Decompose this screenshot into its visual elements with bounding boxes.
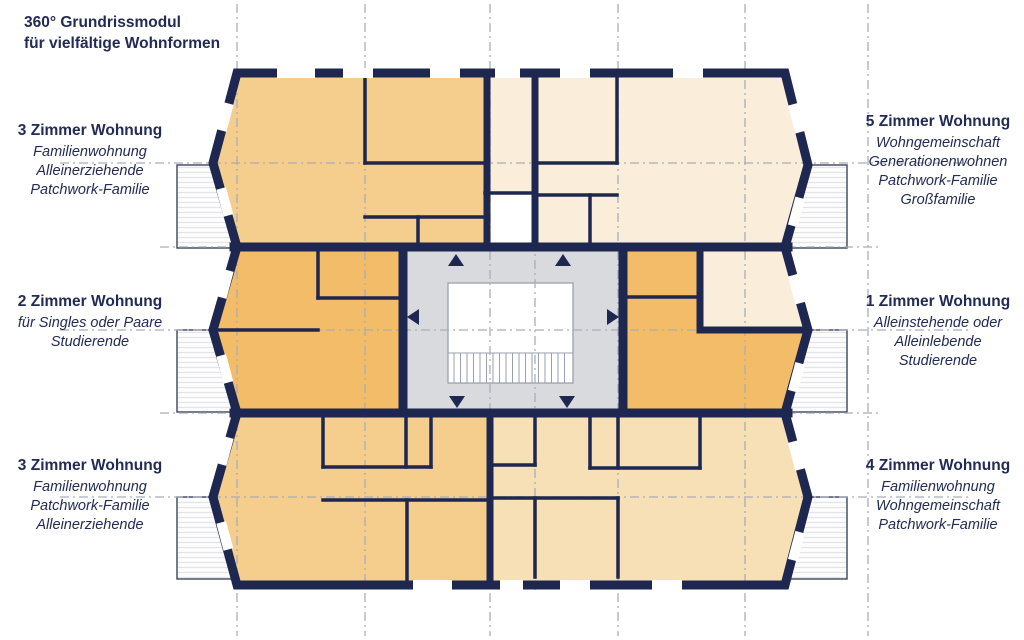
label-line: für Singles oder Paare [5,314,175,333]
label-heading: 3 Zimmer Wohnung [5,456,175,476]
label-line: Familienwohnung [5,478,175,497]
label-line: Studierende [852,352,1024,371]
label-line: Patchwork-Familie [852,516,1024,535]
label-1-zimmer-middle-right: 1 Zimmer Wohnung Alleinstehende oder All… [852,292,1024,371]
label-heading: 2 Zimmer Wohnung [5,292,175,312]
label-heading: 3 Zimmer Wohnung [5,121,175,141]
label-line: Alleinerziehende [5,516,175,535]
label-4-zimmer-bottom-right: 4 Zimmer Wohnung Familienwohnung Wohngem… [852,456,1024,535]
label-line: Alleinstehende oder [852,314,1024,333]
label-line: Patchwork-Familie [5,497,175,516]
label-line: Patchwork-Familie [852,172,1024,191]
label-heading: 4 Zimmer Wohnung [852,456,1024,476]
label-heading: 1 Zimmer Wohnung [852,292,1024,312]
label-line: Wohngemeinschaft [852,134,1024,153]
label-line: Patchwork-Familie [5,181,175,200]
title-line: 360° Grundrissmodul [24,14,181,31]
page-title: 360° Grundrissmodul für vielfältige Wohn… [24,12,264,54]
label-5-zimmer-top-right: 5 Zimmer Wohnung Wohngemeinschaft Genera… [852,112,1024,210]
label-3-zimmer-bottom-left: 3 Zimmer Wohnung Familienwohnung Patchwo… [5,456,175,535]
staircase [448,283,573,383]
label-line: Familienwohnung [852,478,1024,497]
label-line: Familienwohnung [5,143,175,162]
label-line: Studierende [5,333,175,352]
label-3-zimmer-top-left: 3 Zimmer Wohnung Familienwohnung Alleine… [5,121,175,200]
label-2-zimmer-middle-left: 2 Zimmer Wohnung für Singles oder Paare … [5,292,175,352]
label-line: Wohngemeinschaft [852,497,1024,516]
title-line: für vielfältige Wohnformen [24,35,220,52]
label-line: Großfamilie [852,191,1024,210]
label-line: Alleinlebende [852,333,1024,352]
apartment-3-zimmer-top [213,73,487,247]
label-line: Alleinerziehende [5,162,175,181]
label-line: Generationenwohnen [852,153,1024,172]
entry-corridor [487,193,533,247]
label-heading: 5 Zimmer Wohnung [852,112,1024,132]
